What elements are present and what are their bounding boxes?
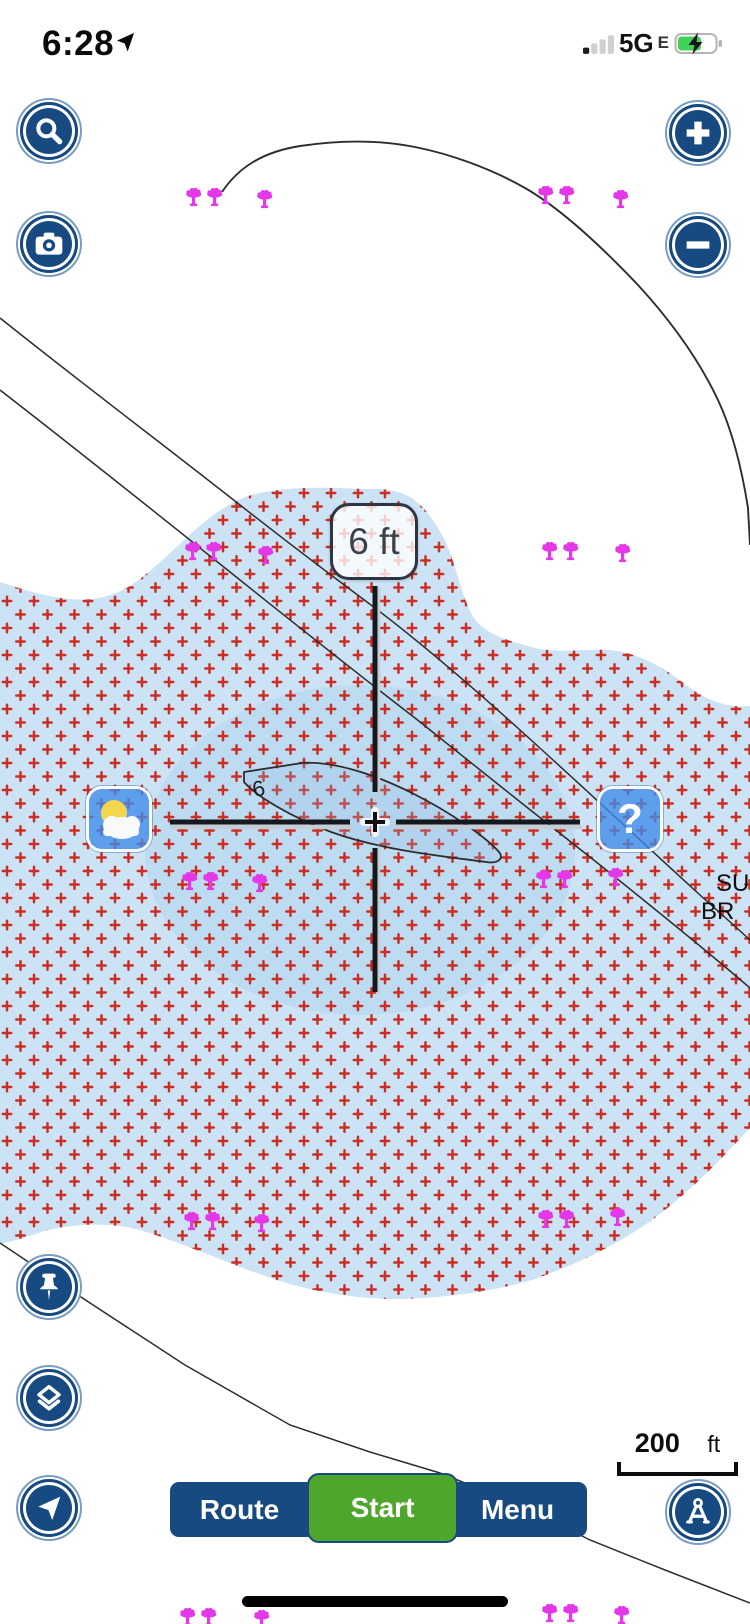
pin-button[interactable] — [16, 1254, 82, 1320]
sun-cloud-weather-icon — [92, 792, 146, 846]
scale-bar: 200 ft — [617, 1428, 738, 1476]
fish-attractor-marker — [538, 186, 553, 204]
fish-attractor-marker — [559, 186, 574, 204]
start-button[interactable]: Start — [307, 1473, 458, 1543]
search-button[interactable] — [16, 98, 82, 164]
pushpin-icon — [33, 1271, 65, 1303]
measure-button[interactable] — [665, 1479, 731, 1545]
fish-attractor-marker — [563, 542, 578, 560]
signal-strength-icon — [583, 33, 614, 54]
network-type: 5G — [619, 28, 654, 59]
fish-attractor-marker — [186, 188, 201, 206]
cursor-depth-label: 6 ft — [330, 503, 418, 580]
fish-attractor-marker — [257, 190, 272, 208]
scale-bracket — [617, 1462, 738, 1476]
fish-attractor-marker — [613, 190, 628, 208]
help-button[interactable]: ? — [597, 786, 663, 852]
app-screen: 6 6:28 — [0, 0, 750, 1624]
location-services-icon — [114, 31, 137, 54]
search-icon — [33, 115, 65, 147]
route-button[interactable]: Route — [170, 1482, 309, 1537]
fish-attractor-marker — [180, 1608, 195, 1624]
question-mark-icon: ? — [617, 798, 643, 840]
layers-button[interactable] — [16, 1365, 82, 1431]
fish-attractor-marker — [615, 544, 630, 562]
zoom-in-button[interactable] — [665, 100, 731, 166]
dividers-compass-icon — [682, 1496, 714, 1528]
locate-button[interactable] — [16, 1475, 82, 1541]
status-bar: 6:28 5G E — [0, 0, 750, 70]
fish-attractor-marker — [207, 188, 222, 206]
fish-attractor-marker — [614, 1606, 629, 1624]
fish-attractor-marker — [542, 542, 557, 560]
fish-attractor-marker — [201, 1608, 216, 1624]
scale-distance: 200 — [635, 1428, 680, 1459]
clock: 6:28 — [42, 24, 114, 64]
battery-charging-icon — [674, 31, 724, 56]
place-name-line1: SU — [716, 870, 749, 898]
home-indicator[interactable] — [242, 1596, 508, 1607]
camera-icon — [33, 228, 65, 260]
camera-button[interactable] — [16, 211, 82, 277]
fish-attractor-marker — [542, 1604, 557, 1622]
zoom-out-button[interactable] — [665, 212, 731, 278]
layers-icon — [33, 1382, 65, 1414]
fish-attractor-marker — [254, 1610, 269, 1624]
navigation-arrow-icon — [33, 1492, 65, 1524]
scale-unit: ft — [707, 1431, 720, 1458]
place-name-line2: BR — [701, 898, 734, 926]
weather-button[interactable] — [86, 786, 152, 852]
menu-button[interactable]: Menu — [448, 1482, 587, 1537]
minus-icon — [682, 229, 714, 261]
fish-attractor-marker — [563, 1604, 578, 1622]
plus-icon — [682, 117, 714, 149]
network-band: E — [658, 33, 669, 53]
